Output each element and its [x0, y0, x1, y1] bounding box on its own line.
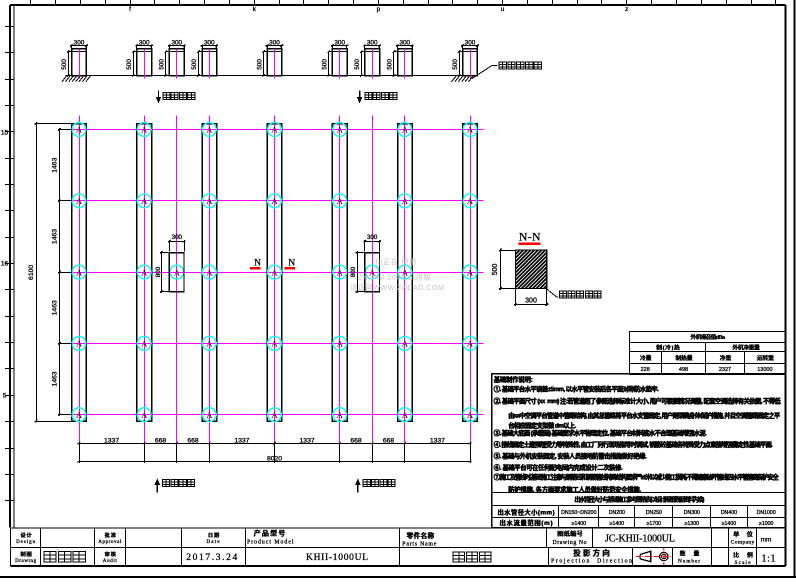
svg-text:DN250: DN250: [646, 510, 662, 516]
svg-text:审核: 审核: [105, 550, 117, 558]
svg-text:f: f: [129, 6, 131, 13]
svg-text:⑤. 基础与外机安装固定, 安装人员接地防雷击措施做好绝缘.: ⑤. 基础与外机安装固定, 安装人员接地防雷击措施做好绝缘.: [494, 451, 647, 460]
svg-text:A: A: [402, 196, 409, 206]
svg-text:1:1: 1:1: [762, 554, 776, 565]
svg-text:N: N: [254, 258, 261, 268]
svg-text:A: A: [206, 267, 213, 277]
svg-text:300: 300: [172, 234, 183, 241]
svg-text:产品型号: 产品型号: [254, 529, 286, 538]
svg-text:1337: 1337: [300, 438, 315, 445]
svg-text:Drawing: Drawing: [15, 559, 36, 564]
svg-text:A: A: [271, 339, 278, 349]
svg-text:300: 300: [269, 40, 280, 47]
svg-text:300: 300: [171, 40, 182, 47]
svg-text:Company: Company: [731, 540, 755, 546]
svg-text:Approval: Approval: [98, 540, 122, 545]
svg-text:Number: Number: [678, 559, 700, 565]
svg-text:N: N: [288, 258, 295, 268]
svg-text:DN200: DN200: [609, 510, 625, 516]
svg-text:500: 500: [452, 59, 459, 70]
svg-text:Product Model: Product Model: [247, 540, 294, 546]
svg-text:500: 500: [191, 59, 198, 70]
svg-text:1337: 1337: [234, 438, 249, 445]
svg-text:≥1300: ≥1300: [685, 521, 700, 527]
svg-text:668: 668: [350, 438, 362, 445]
svg-text:A: A: [467, 339, 474, 349]
svg-text:1463: 1463: [52, 300, 59, 315]
svg-text:⑦. 施工及管线时, 基础施工注意与钢筋砼和钢筋管线特殊结构: ⑦. 施工及管线时, 基础施工注意与钢筋砼和钢筋管线特殊结构要求严≥1米以减少施…: [494, 473, 780, 482]
svg-text:外机净重量: 外机净重量: [733, 344, 761, 352]
svg-text:300: 300: [367, 234, 378, 241]
svg-text:500: 500: [256, 59, 263, 70]
svg-text:A: A: [206, 125, 213, 135]
svg-text:Parts Name: Parts Name: [402, 542, 436, 548]
svg-text:A: A: [402, 410, 409, 420]
svg-text:净重: 净重: [720, 354, 732, 362]
svg-text:③. 基础大底面 (承载面) 基础要求水平物理定位, 基础平: ③. 基础大底面 (承载面) 基础要求水平物理定位, 基础平台材料底水不合理基础…: [494, 429, 707, 438]
svg-text:1463: 1463: [52, 157, 59, 172]
svg-text:A: A: [402, 125, 409, 135]
svg-text:A: A: [402, 339, 409, 349]
svg-text:300: 300: [367, 40, 378, 47]
svg-text:A: A: [76, 125, 83, 135]
svg-text:668: 668: [383, 438, 395, 445]
svg-text:A: A: [271, 125, 278, 135]
svg-text:2327: 2327: [719, 367, 731, 373]
svg-text:p: p: [377, 6, 381, 13]
svg-text:ZwCAD 2002 试用版: ZwCAD 2002 试用版: [358, 273, 431, 282]
svg-text:1337: 1337: [430, 438, 445, 445]
svg-text:16: 16: [1, 261, 9, 268]
svg-text:≥1400: ≥1400: [572, 521, 587, 527]
svg-text:A: A: [467, 267, 474, 277]
svg-text:300: 300: [204, 40, 215, 47]
svg-text:800: 800: [155, 266, 162, 277]
svg-text:500: 500: [159, 59, 166, 70]
svg-text:A: A: [206, 196, 213, 206]
svg-text:A: A: [206, 410, 213, 420]
svg-text:300: 300: [525, 297, 537, 304]
svg-text:Audit: Audit: [103, 559, 118, 564]
svg-text:制(冷)热: 制(冷)热: [657, 344, 681, 352]
svg-text:②. 基础平面尺寸 (xx mm) 注:若管道超了参照选择: ②. 基础平面尺寸 (xx mm) 注:若管道超了参照选择标准计大小, 用户可根…: [494, 397, 782, 406]
svg-text:2017.3.24: 2017.3.24: [186, 553, 237, 563]
svg-text:Drawing No: Drawing No: [553, 540, 587, 546]
svg-text:冷量: 冷量: [640, 354, 652, 362]
svg-text:Scale: Scale: [735, 560, 752, 566]
svg-text:500: 500: [387, 59, 394, 70]
svg-text:500: 500: [322, 59, 329, 70]
svg-text:u: u: [501, 6, 505, 13]
svg-text:300: 300: [399, 40, 410, 47]
svg-text:零件名称: 零件名称: [406, 531, 435, 540]
svg-text:15: 15: [1, 129, 9, 136]
svg-text:8020: 8020: [267, 455, 282, 462]
svg-text:制热量: 制热量: [676, 354, 693, 362]
svg-text:Date: Date: [207, 540, 221, 545]
svg-text:JC-KHII-1000UL: JC-KHII-1000UL: [605, 533, 675, 544]
svg-text:④. 接线固定土建预埋受力等特殊性, 由工厂另行现场指导时调: ④. 接线固定土建预埋受力等特殊性, 由工厂另行现场指导时调试, 钢筋砼基础各特…: [494, 440, 773, 449]
svg-text:A: A: [337, 125, 344, 135]
svg-text:5: 5: [3, 392, 7, 399]
svg-text:≥1700: ≥1700: [647, 521, 662, 527]
svg-text:A: A: [467, 125, 474, 135]
svg-text:KHII-1000UL: KHII-1000UL: [306, 553, 368, 563]
svg-text:出水管径大小与基础施工参考规格表(以设计图纸数据资料为准): 出水管径大小与基础施工参考规格表(以设计图纸数据资料为准): [574, 495, 704, 504]
svg-text:500: 500: [492, 263, 499, 275]
svg-text:DN400: DN400: [721, 510, 737, 516]
svg-text:300: 300: [74, 40, 85, 47]
svg-text:运转重: 运转重: [757, 354, 774, 362]
svg-text:≥1400: ≥1400: [722, 521, 737, 527]
svg-text:A: A: [271, 267, 278, 277]
svg-text:Design: Design: [16, 540, 35, 545]
svg-text:由xx中空调平台管道中管路结构, 由其总管路将平台水支管固定: 由xx中空调平台管道中管路结构, 由其总管路将平台水支管固定, 用户则须确身体保…: [508, 411, 781, 420]
svg-text:300: 300: [334, 40, 345, 47]
svg-text:A: A: [337, 339, 344, 349]
svg-text:A: A: [141, 125, 148, 135]
svg-text:A: A: [141, 410, 148, 420]
svg-text:日期: 日期: [208, 531, 219, 539]
svg-text:A: A: [206, 339, 213, 349]
svg-text:A: A: [76, 410, 83, 420]
svg-text:13000: 13000: [757, 367, 772, 373]
svg-text:1463: 1463: [52, 229, 59, 244]
svg-text:≥1400: ≥1400: [610, 521, 625, 527]
svg-text:228: 228: [641, 367, 650, 373]
svg-text:498: 498: [679, 367, 688, 373]
svg-text:出水管径大小(mm): 出水管径大小(mm): [498, 507, 555, 516]
svg-text:300: 300: [139, 40, 150, 47]
svg-text:N-N: N-N: [519, 231, 541, 243]
svg-text:mm: mm: [761, 537, 772, 544]
svg-text:A: A: [337, 410, 344, 420]
svg-text:A: A: [76, 339, 83, 349]
svg-text:批准: 批准: [105, 531, 117, 539]
svg-text:668: 668: [187, 438, 199, 445]
svg-text:500: 500: [126, 59, 133, 70]
svg-text:A: A: [271, 196, 278, 206]
svg-text:A: A: [337, 196, 344, 206]
svg-text:设计: 设计: [21, 531, 33, 539]
svg-text:z: z: [625, 6, 628, 13]
svg-text:A: A: [76, 196, 83, 206]
svg-text:①. 基础平台水平误差±5mm, 以水平管安装后各平面对称防: ①. 基础平台水平误差±5mm, 以水平管安装后各平面对称防水垫牢.: [494, 385, 659, 394]
svg-text:A: A: [141, 196, 148, 206]
svg-text:1463: 1463: [52, 371, 59, 386]
svg-text:请访问WWW.ZwCAD.COM: 请访问WWW.ZwCAD.COM: [350, 283, 444, 292]
svg-text:A: A: [467, 410, 474, 420]
svg-text:6100: 6100: [28, 265, 35, 280]
svg-text:A: A: [76, 267, 83, 277]
svg-text:你正在 使用: 你正在 使用: [375, 258, 416, 267]
svg-text:800: 800: [350, 266, 357, 277]
svg-text:外机噪音值dBa: 外机噪音值dBa: [691, 333, 726, 341]
svg-text:1337: 1337: [104, 438, 119, 445]
svg-text:668: 668: [155, 438, 167, 445]
svg-text:500: 500: [61, 59, 68, 70]
svg-text:图纸编号: 图纸编号: [558, 530, 583, 538]
svg-text:≥1000: ≥1000: [759, 521, 774, 527]
svg-text:A: A: [141, 339, 148, 349]
svg-text:A: A: [337, 267, 344, 277]
svg-text:A: A: [174, 267, 181, 277]
svg-text:DN300: DN300: [684, 510, 700, 516]
svg-text:A: A: [141, 267, 148, 277]
svg-text:制图: 制图: [21, 550, 32, 558]
svg-text:300: 300: [465, 40, 476, 47]
svg-text:500: 500: [354, 59, 361, 70]
svg-text:A: A: [271, 410, 278, 420]
svg-text:A: A: [467, 196, 474, 206]
svg-text:⑥. 基础平台可在任何配电间内完成设计二次装修.: ⑥. 基础平台可在任何配电间内完成设计二次装修.: [494, 463, 623, 472]
svg-text:DN1000: DN1000: [757, 510, 776, 516]
svg-text:基础制作说明:: 基础制作说明:: [493, 375, 533, 384]
svg-text:DN150~DN200: DN150~DN200: [561, 510, 596, 516]
svg-text:台相应固定支架做 dm以上.: 台相应固定支架做 dm以上.: [508, 421, 576, 430]
